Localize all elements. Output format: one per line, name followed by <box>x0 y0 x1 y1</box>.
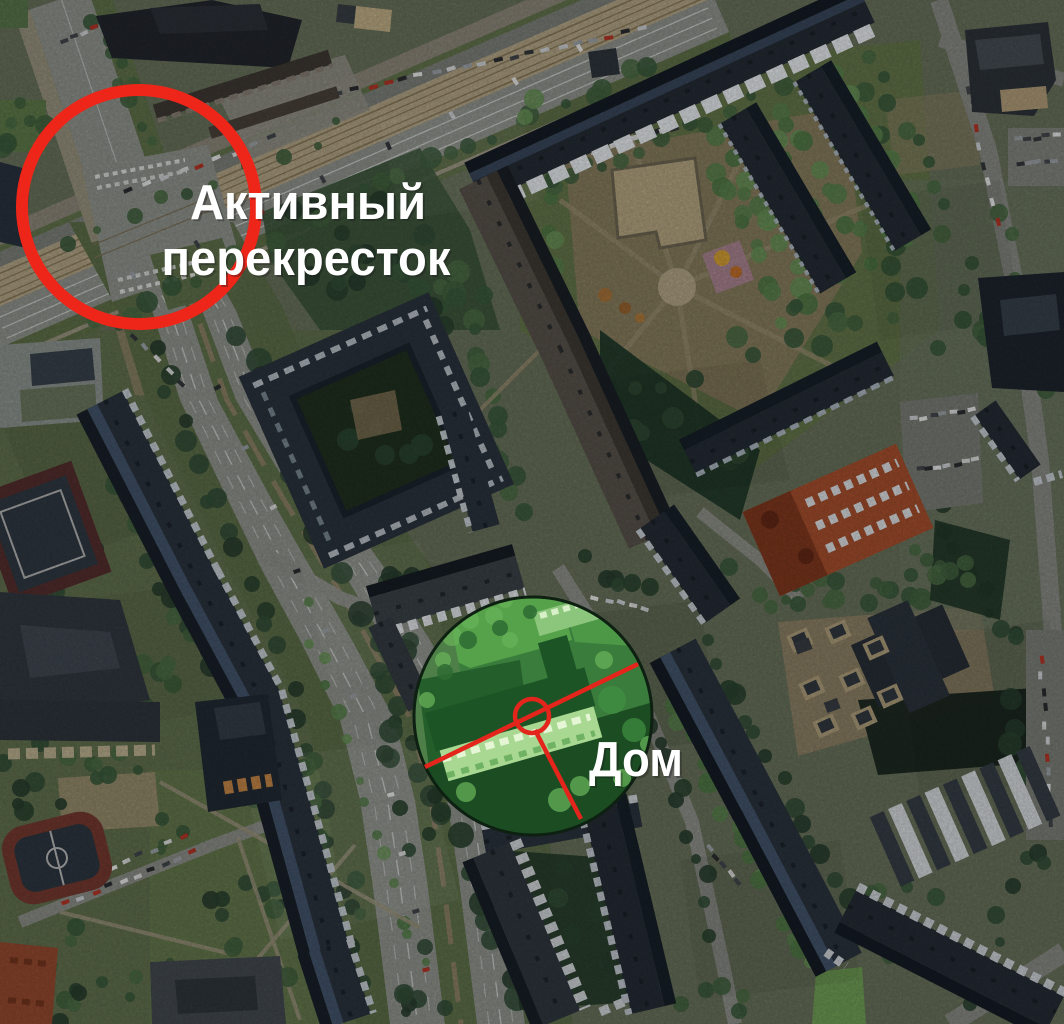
svg-text:Активный: Активный <box>190 176 426 230</box>
svg-text:перекресток: перекресток <box>162 232 451 286</box>
svg-text:Дом: Дом <box>589 733 683 787</box>
